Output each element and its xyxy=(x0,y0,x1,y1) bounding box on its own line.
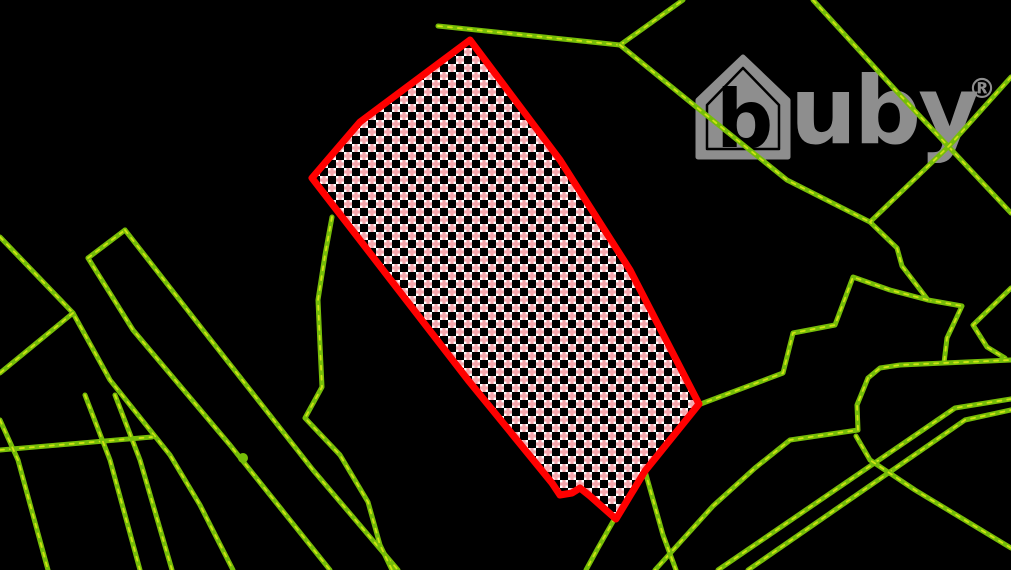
map-viewport[interactable]: b uby ® xyxy=(0,0,1011,570)
map-canvas[interactable]: b uby ® xyxy=(0,0,1011,570)
map-point-marker xyxy=(238,453,248,463)
logo-letter-b: b xyxy=(716,73,773,166)
